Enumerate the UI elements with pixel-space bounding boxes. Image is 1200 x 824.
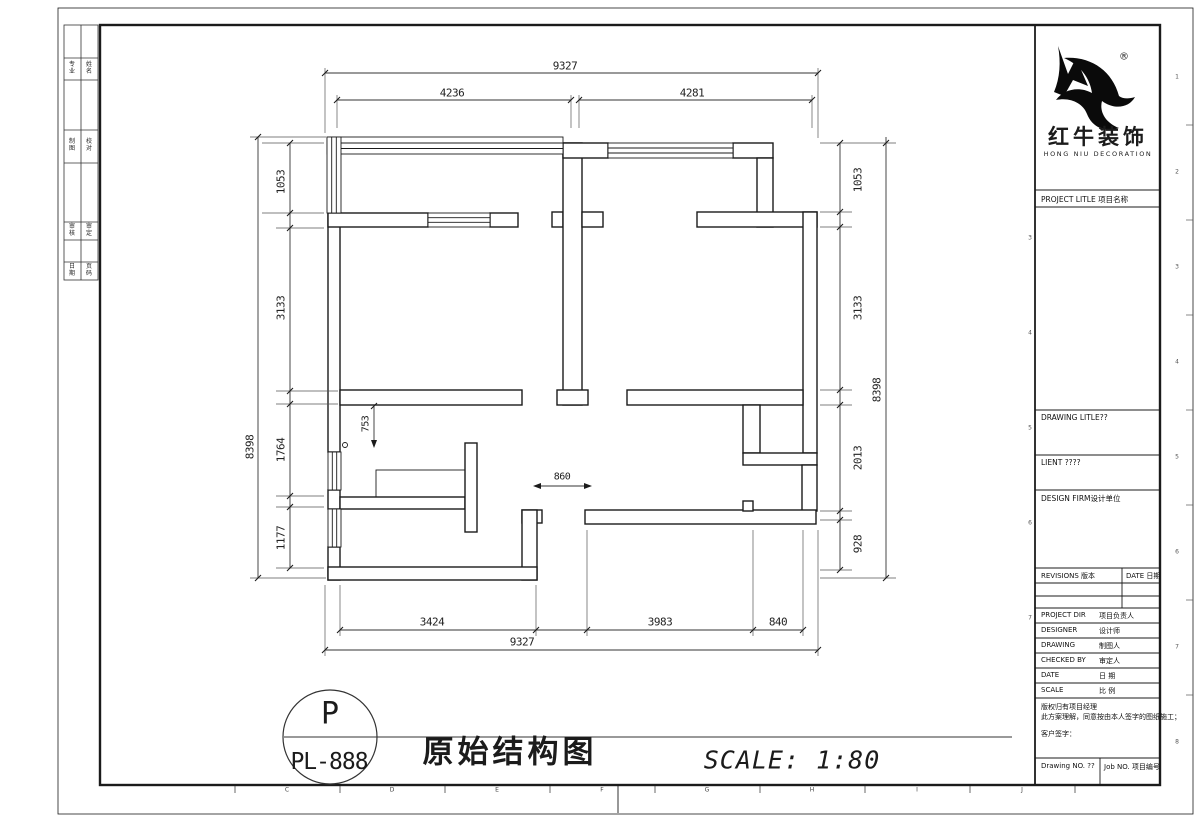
tb-project-dir-en: PROJECT DIR — [1041, 611, 1086, 619]
zone-number: 2 — [1175, 169, 1179, 176]
zone-number: 5 — [1175, 454, 1179, 461]
tb-designer-cn: 设计师 — [1099, 626, 1120, 636]
tb-drawing-en: DRAWING — [1041, 641, 1075, 649]
zone-number: 1 — [1175, 74, 1179, 81]
zone-number: 8 — [1175, 739, 1179, 746]
tb-customer-sign: 客户签字： — [1041, 729, 1076, 739]
drawing-name: 原始结构图 — [423, 727, 598, 772]
zone-number: 3 — [1175, 264, 1179, 271]
dim-860: 860 — [554, 472, 571, 483]
zone-number-inner: 7 — [1028, 615, 1032, 622]
zone-number: 7 — [1175, 644, 1179, 651]
walls — [328, 143, 817, 580]
ruler-letter: G — [705, 787, 710, 794]
strip-cell: 页码 — [85, 264, 93, 277]
ruler-letter: F — [600, 787, 603, 794]
zone-number-inner: 5 — [1028, 425, 1032, 432]
zone-number-inner: 6 — [1028, 520, 1032, 527]
tb-project-dir-cn: 项目负责人 — [1099, 611, 1134, 621]
plan-linework — [0, 0, 1200, 824]
dim-left-3133: 3133 — [275, 296, 288, 321]
dim-top-left: 4236 — [440, 87, 465, 100]
tb-disclaimer-2: 此方案理解，同意按由本人签字的图纸施工； — [1041, 712, 1181, 722]
dim-top-right: 4281 — [680, 87, 705, 100]
windows — [327, 137, 733, 547]
bubble-code: PL-888 — [290, 749, 367, 775]
dim-right-1053: 1053 — [852, 168, 865, 193]
strip-cell: 审定 — [85, 224, 93, 237]
kitchen-counter-outline — [343, 443, 466, 498]
drawing-sheet: 9327 4236 4281 1053 3133 1764 1177 8398 … — [0, 0, 1200, 824]
ruler-letter: C — [285, 787, 289, 794]
dim-bottom-840: 840 — [769, 616, 787, 629]
right-zone-ticks — [1186, 125, 1193, 695]
dim-left-1053: 1053 — [275, 170, 288, 195]
dim-bottom-3983: 3983 — [648, 616, 673, 629]
tb-job-no: Job NO. 项目编号 — [1104, 762, 1160, 772]
zone-number-inner: 4 — [1028, 330, 1032, 337]
tb-date-col: DATE 日期 — [1126, 571, 1160, 581]
pipe-marker — [343, 443, 348, 448]
strip-cell: 姓名 — [85, 62, 93, 75]
dim-753: 753 — [361, 416, 372, 433]
tb-checked-en: CHECKED BY — [1041, 656, 1086, 664]
tb-drawing-no: Drawing NO. ?? — [1041, 762, 1095, 770]
dim-right-928: 928 — [852, 535, 865, 553]
dim-right-3133: 3133 — [852, 296, 865, 321]
strip-cell: 专业 — [68, 62, 76, 75]
titleblock-lines — [1035, 190, 1160, 785]
tb-scale-cn: 比 例 — [1099, 686, 1115, 696]
zone-number-inner: 3 — [1028, 235, 1032, 242]
ruler-letter: D — [390, 787, 395, 794]
dim-left-overall: 8398 — [244, 435, 257, 460]
ruler-letter: E — [495, 787, 499, 794]
tb-revisions: REVISIONS 版本 — [1041, 571, 1095, 581]
dim-right-overall: 8398 — [871, 378, 884, 403]
tb-scale-en: SCALE — [1041, 686, 1063, 694]
dim-right-2013: 2013 — [852, 446, 865, 471]
tb-design-firm: DESIGN FIRM设计单位 — [1041, 493, 1121, 504]
dim-left-1177: 1177 — [275, 526, 288, 551]
dim-top-overall: 9327 — [553, 60, 578, 73]
bottom-ruler-ticks — [235, 786, 1075, 793]
logo-company-name-en: HONG NIU DECORATION — [1044, 150, 1153, 158]
title-bubble — [283, 690, 1012, 784]
registered-mark-icon: ® — [1119, 52, 1129, 63]
zone-number: 6 — [1175, 549, 1179, 556]
zone-number: 4 — [1175, 359, 1179, 366]
dim-bottom-overall: 9327 — [510, 636, 535, 649]
scale-text: SCALE: 1:80 — [704, 746, 881, 775]
tb-project-title: PROJECT LITLE 项目名称 — [1041, 194, 1128, 205]
strip-cell: 校对 — [85, 139, 93, 152]
ruler-letter: J — [1021, 787, 1023, 794]
tb-date-en: DATE — [1041, 671, 1059, 679]
ruler-letter: I — [916, 787, 918, 794]
bubble-letter: P — [321, 697, 339, 732]
dim-left-1764: 1764 — [275, 438, 288, 463]
tb-date-cn: 日 期 — [1099, 671, 1115, 681]
tb-client: LIENT ???? — [1041, 458, 1081, 467]
strip-cell: 日期 — [68, 264, 76, 277]
dim-bottom-3424: 3424 — [420, 616, 445, 629]
tb-designer-en: DESIGNER — [1041, 626, 1077, 634]
tb-drawing-cn: 制图人 — [1099, 641, 1120, 651]
tb-disclaimer-1: 版权归有项目经理 — [1041, 702, 1097, 712]
sheet-borders — [58, 8, 1193, 814]
ruler-letter: H — [810, 787, 815, 794]
strip-cell: 审核 — [68, 224, 76, 237]
logo-company-name: 红牛装饰 — [1048, 121, 1148, 151]
strip-cell: 制图 — [68, 139, 76, 152]
tb-drawing-title: DRAWING LITLE?? — [1041, 413, 1108, 422]
tb-checked-cn: 审定人 — [1099, 656, 1120, 666]
